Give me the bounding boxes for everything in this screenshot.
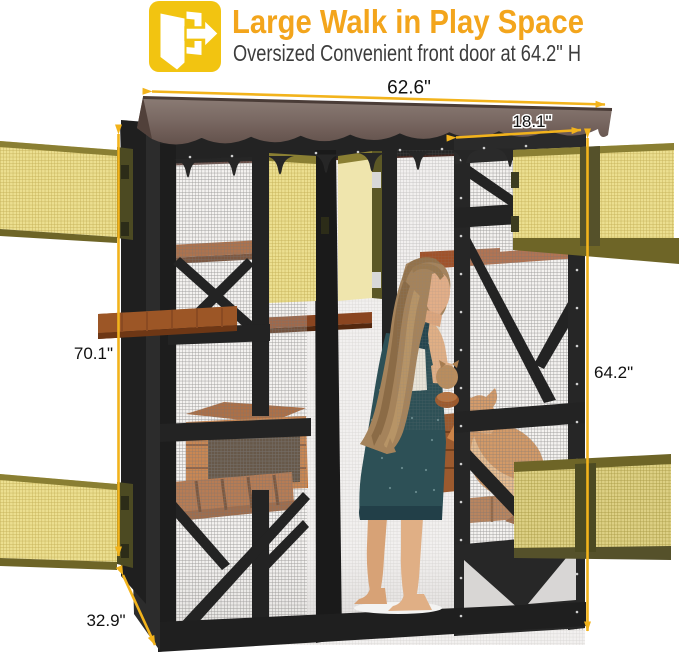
svg-text:Oversized Convenient front doo: Oversized Convenient front door at 64.2"… [233, 40, 581, 66]
svg-text:Large Walk in Play Space: Large Walk in Play Space [232, 3, 584, 40]
svg-text:18.1": 18.1" [512, 112, 551, 131]
svg-text:70.1": 70.1" [74, 344, 113, 363]
svg-text:32.9": 32.9" [86, 611, 125, 630]
svg-text:62.6": 62.6" [387, 78, 431, 99]
svg-text:64.2": 64.2" [594, 363, 633, 382]
